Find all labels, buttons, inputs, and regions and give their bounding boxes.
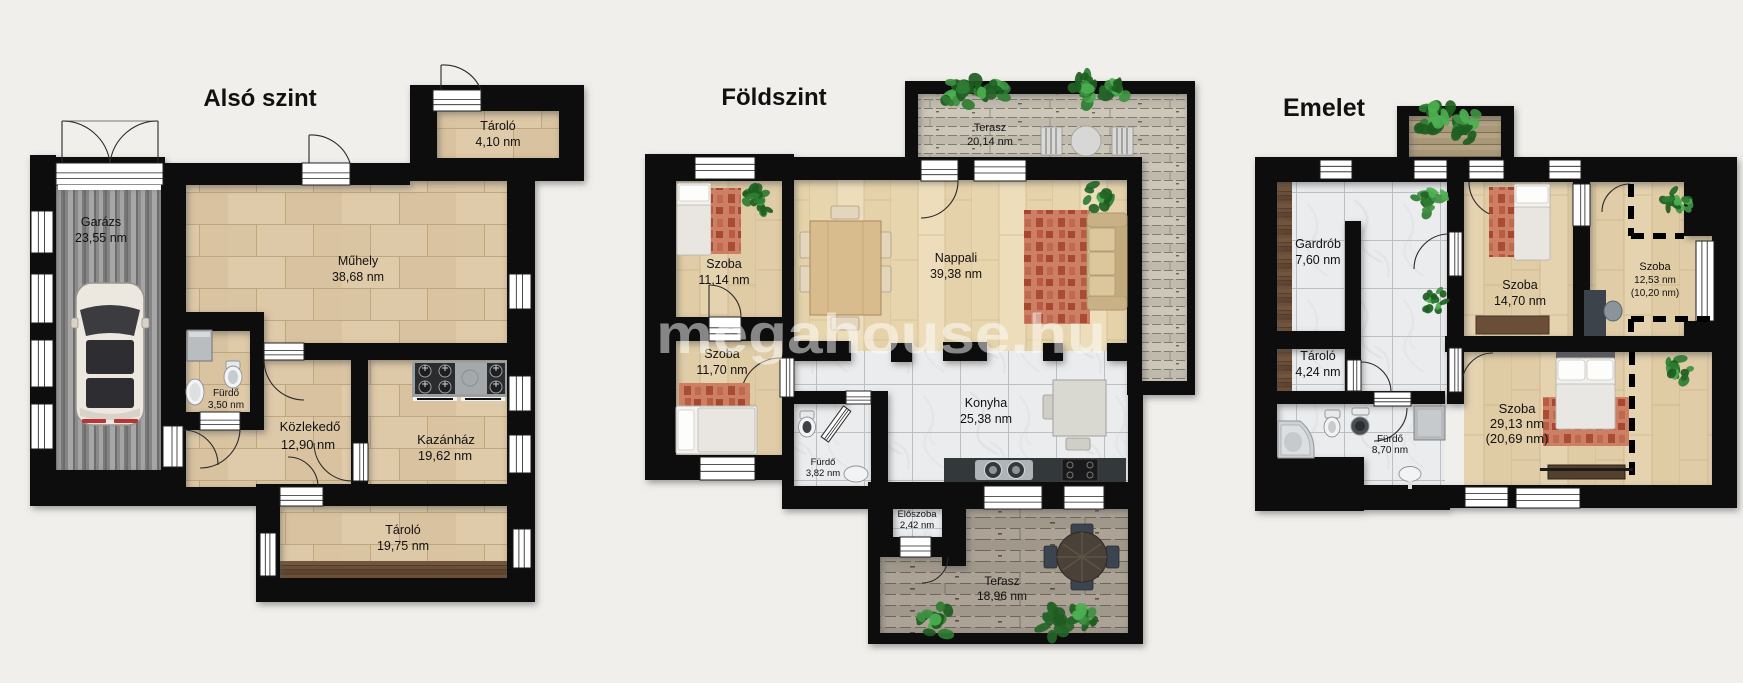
svg-text:3,50 nm: 3,50 nm [208,400,244,411]
svg-text:12,90 nm: 12,90 nm [281,437,335,452]
svg-text:Kazánház: Kazánház [417,432,475,447]
svg-text:(10,20 nm): (10,20 nm) [1631,288,1679,299]
svg-text:megahouse.hu: megahouse.hu [656,302,1106,365]
svg-text:Közlekedő: Közlekedő [280,419,341,434]
svg-text:18,96 nm: 18,96 nm [977,589,1027,603]
svg-text:39,38 nm: 39,38 nm [930,267,982,281]
svg-text:Nappali: Nappali [935,251,977,265]
svg-text:19,75 nm: 19,75 nm [377,539,429,553]
svg-text:Szoba: Szoba [706,257,741,271]
svg-text:Szoba: Szoba [1639,261,1671,273]
svg-text:29,13 nm: 29,13 nm [1490,416,1544,431]
svg-text:12,53 nm: 12,53 nm [1634,275,1676,286]
svg-text:Tároló: Tároló [480,119,515,133]
svg-text:Gardrób: Gardrób [1295,237,1341,251]
svg-text:20,14 nm: 20,14 nm [967,136,1013,148]
svg-text:Szoba: Szoba [1502,278,1537,292]
svg-text:3,82 nm: 3,82 nm [806,468,840,479]
svg-text:11,70 nm: 11,70 nm [696,363,747,377]
svg-text:Alsó szint: Alsó szint [203,85,316,112]
svg-text:38,68 nm: 38,68 nm [332,270,384,284]
svg-text:Műhely: Műhely [338,254,379,268]
svg-text:23,55 nm: 23,55 nm [75,231,127,245]
svg-text:Fürdő: Fürdő [213,388,240,399]
svg-text:Terasz: Terasz [984,574,1019,588]
svg-text:Tároló: Tároló [1300,349,1335,363]
svg-text:2,42 nm: 2,42 nm [900,520,934,531]
svg-text:11,14 nm: 11,14 nm [698,273,749,287]
svg-text:14,70 nm: 14,70 nm [1494,294,1546,308]
svg-text:Emelet: Emelet [1283,94,1366,122]
svg-text:4,24 nm: 4,24 nm [1295,365,1340,379]
svg-text:25,38 nm: 25,38 nm [960,412,1012,426]
svg-text:Fürdő: Fürdő [1377,434,1404,445]
svg-text:4,10 nm: 4,10 nm [475,135,520,149]
svg-text:Szoba: Szoba [1499,401,1537,416]
svg-text:(20,69 nm): (20,69 nm) [1486,431,1549,446]
svg-text:19,62 nm: 19,62 nm [418,448,472,463]
svg-text:Előszoba: Előszoba [897,509,937,520]
svg-text:Fürdő: Fürdő [811,457,836,468]
svg-text:7,60 nm: 7,60 nm [1295,253,1340,267]
svg-text:Földszint: Földszint [721,84,826,111]
svg-text:Garázs: Garázs [81,215,121,229]
svg-text:Konyha: Konyha [965,396,1007,410]
svg-text:Tároló: Tároló [385,523,420,537]
svg-text:Terasz: Terasz [974,122,1006,134]
svg-text:8,70 nm: 8,70 nm [1372,445,1408,456]
